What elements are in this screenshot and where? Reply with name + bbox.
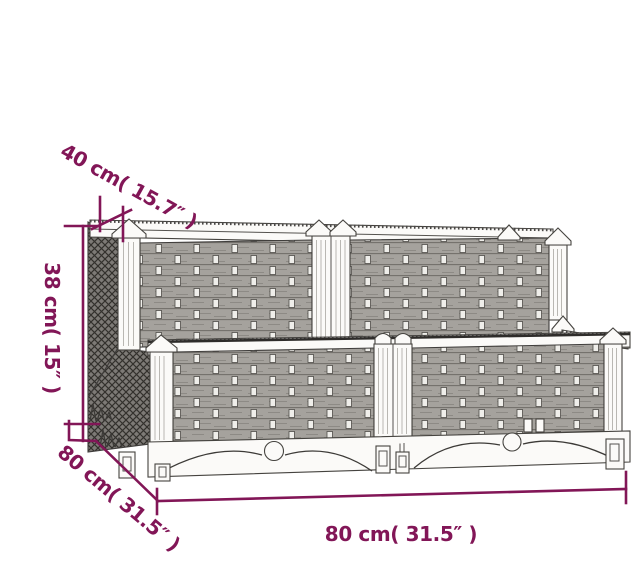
foot: [376, 446, 390, 473]
base-circle-ornament: [265, 442, 284, 461]
round-cap: [395, 334, 411, 345]
planter-drawing: [88, 219, 630, 481]
lower-left-post: [146, 335, 177, 444]
width-dimension-line: [158, 489, 626, 501]
dimension-label-width: 80 cm( 31.5″ ): [325, 522, 477, 546]
dimension-label-height: 38 cm( 15″ ): [40, 262, 64, 394]
lower-middle-post: [374, 334, 412, 439]
pyramid-cap: [600, 328, 626, 344]
dimension-width-80cm: 80 cm( 31.5″ ): [158, 472, 626, 546]
upper-weave-panel-right: [350, 238, 549, 342]
product-dimension-diagram: 38 cm( 15″ ) 40 cm( 15.7″ ) 80 cm( 31.5″…: [0, 0, 640, 588]
clip: [524, 419, 532, 432]
round-cap: [375, 334, 391, 345]
clip: [536, 419, 544, 432]
lower-weave-panel-right: [412, 344, 604, 437]
pyramid-cap: [330, 220, 356, 236]
upper-weave-panel-left: [140, 240, 312, 347]
upper-right-post: [545, 228, 571, 320]
pyramid-cap: [306, 220, 332, 236]
lower-weave-panel-left: [173, 348, 374, 444]
foot: [396, 452, 409, 473]
planter-line-drawing: 38 cm( 15″ ) 40 cm( 15.7″ ) 80 cm( 31.5″…: [0, 0, 640, 588]
base-circle-ornament: [503, 433, 521, 451]
lower-tier: [146, 328, 630, 444]
lower-right-post: [600, 328, 626, 434]
upper-tier: [90, 219, 628, 352]
upper-middle-post: [306, 220, 356, 344]
